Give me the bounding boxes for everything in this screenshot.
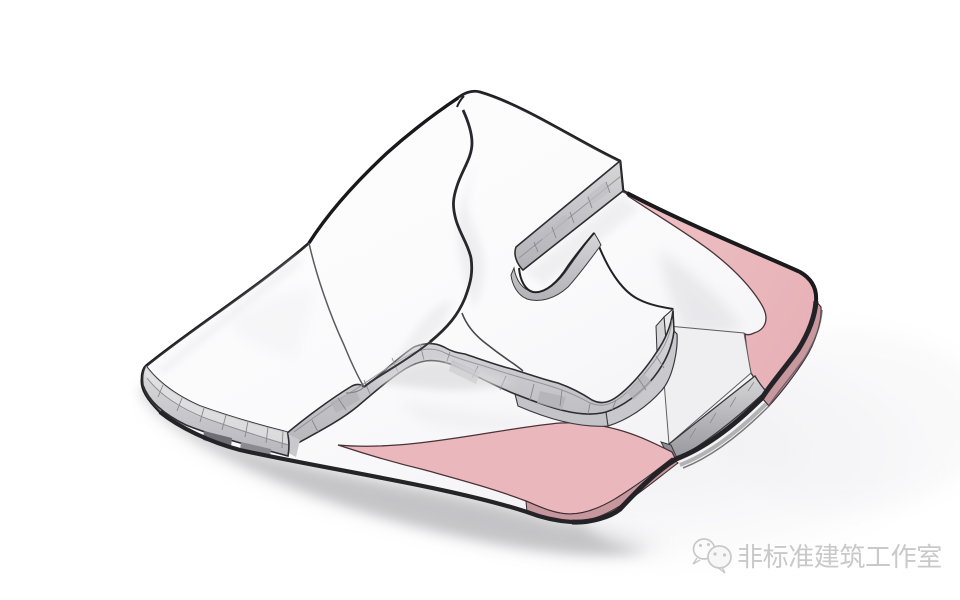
svg-text:非标准建筑工作室: 非标准建筑工作室 — [737, 542, 942, 572]
